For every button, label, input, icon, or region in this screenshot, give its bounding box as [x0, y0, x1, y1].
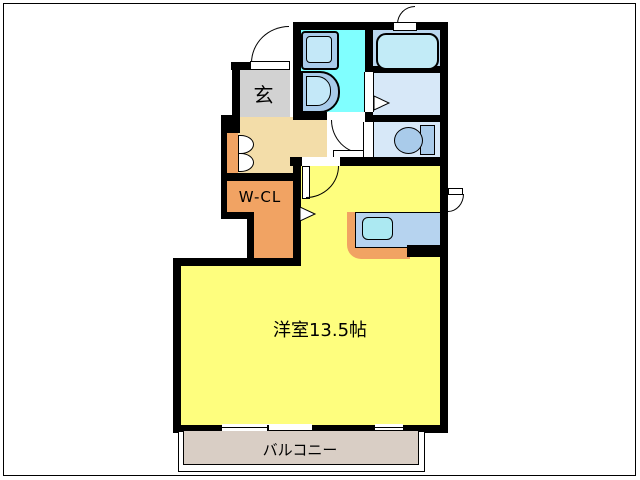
wall [365, 115, 440, 122]
door-marker-triangle-icon [373, 95, 391, 112]
wall [173, 258, 181, 433]
wall [247, 212, 254, 264]
wall [221, 115, 240, 133]
main-door-gap [302, 157, 340, 166]
kitchen-sink-icon [362, 217, 393, 240]
wall [293, 22, 301, 120]
vent-door-leaf [393, 22, 417, 31]
washing-machine-inner [306, 36, 332, 63]
hall-closet [227, 133, 238, 173]
balcony-label: バルコニー [183, 438, 417, 460]
toilet-bowl-icon [394, 127, 423, 154]
room-wcl-lower [254, 212, 293, 258]
wall [365, 22, 373, 72]
window-line [222, 427, 269, 428]
door-marker-triangle-icon [299, 206, 317, 223]
bathtub-icon [376, 33, 439, 70]
room-hallway-east [293, 120, 327, 157]
floor-plan: 玄 W-CL 洋室13.5帖 バルコニー [0, 0, 640, 480]
wall [293, 112, 327, 120]
wall [290, 157, 302, 166]
wcl-label: W-CL [227, 183, 293, 210]
wall [440, 22, 448, 433]
wall [221, 173, 301, 181]
vanity-sink-bowl [306, 76, 331, 106]
entry-door-leaf [250, 61, 290, 70]
kitchen-partition-wall [407, 245, 440, 257]
wall [173, 258, 301, 266]
wall [293, 22, 394, 30]
window-line [375, 427, 403, 428]
main-room-label: 洋室13.5帖 [230, 316, 410, 342]
toilet-door [363, 122, 374, 157]
genkan-label: 玄 [237, 72, 290, 115]
wall [340, 157, 448, 166]
room-main-lower [181, 266, 440, 425]
